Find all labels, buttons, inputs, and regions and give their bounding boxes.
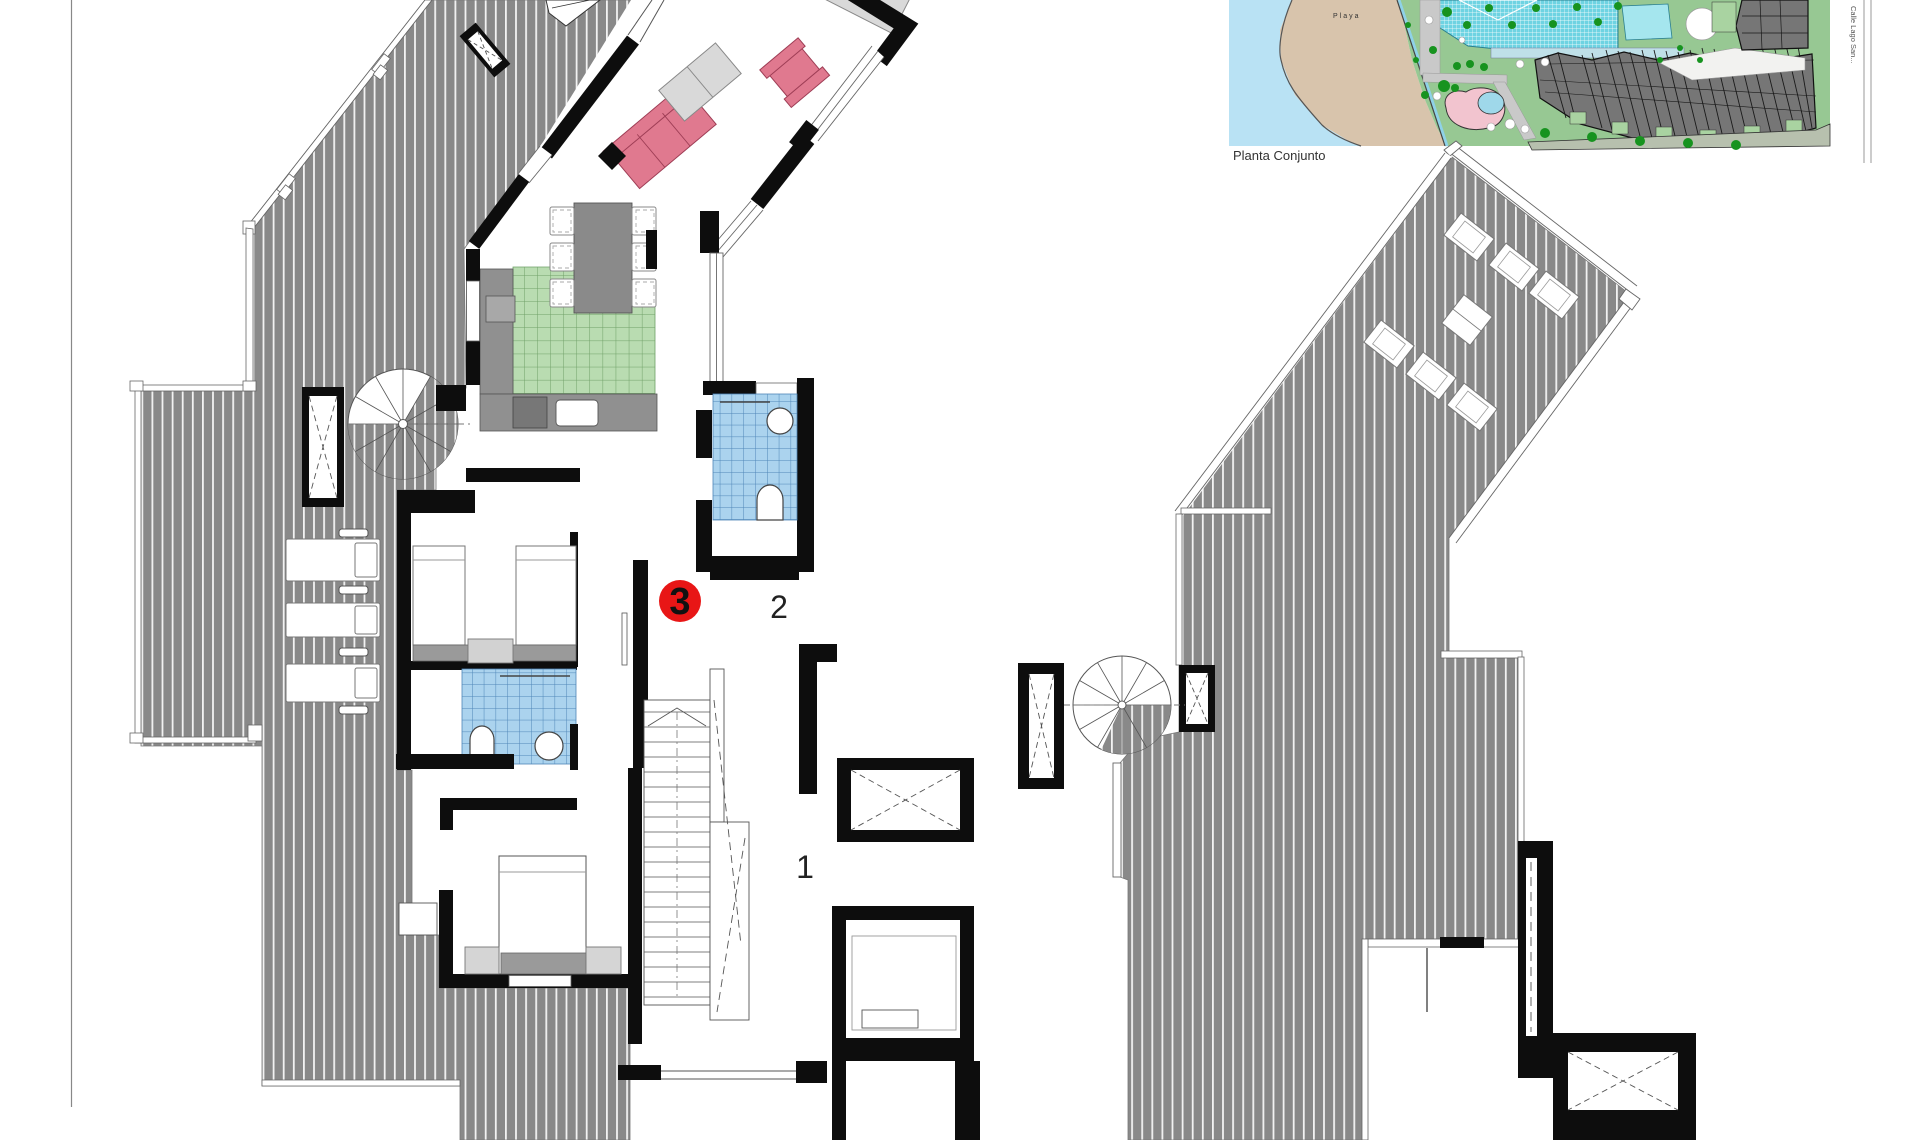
svg-text:Playa: Playa <box>1333 13 1361 20</box>
svg-text:1: 1 <box>796 849 814 885</box>
svg-text:2: 2 <box>770 589 788 625</box>
svg-text:Planta Conjunto: Planta Conjunto <box>1233 148 1326 163</box>
svg-text:Calle Lago San...: Calle Lago San... <box>1849 6 1858 64</box>
svg-text:3: 3 <box>669 581 690 623</box>
